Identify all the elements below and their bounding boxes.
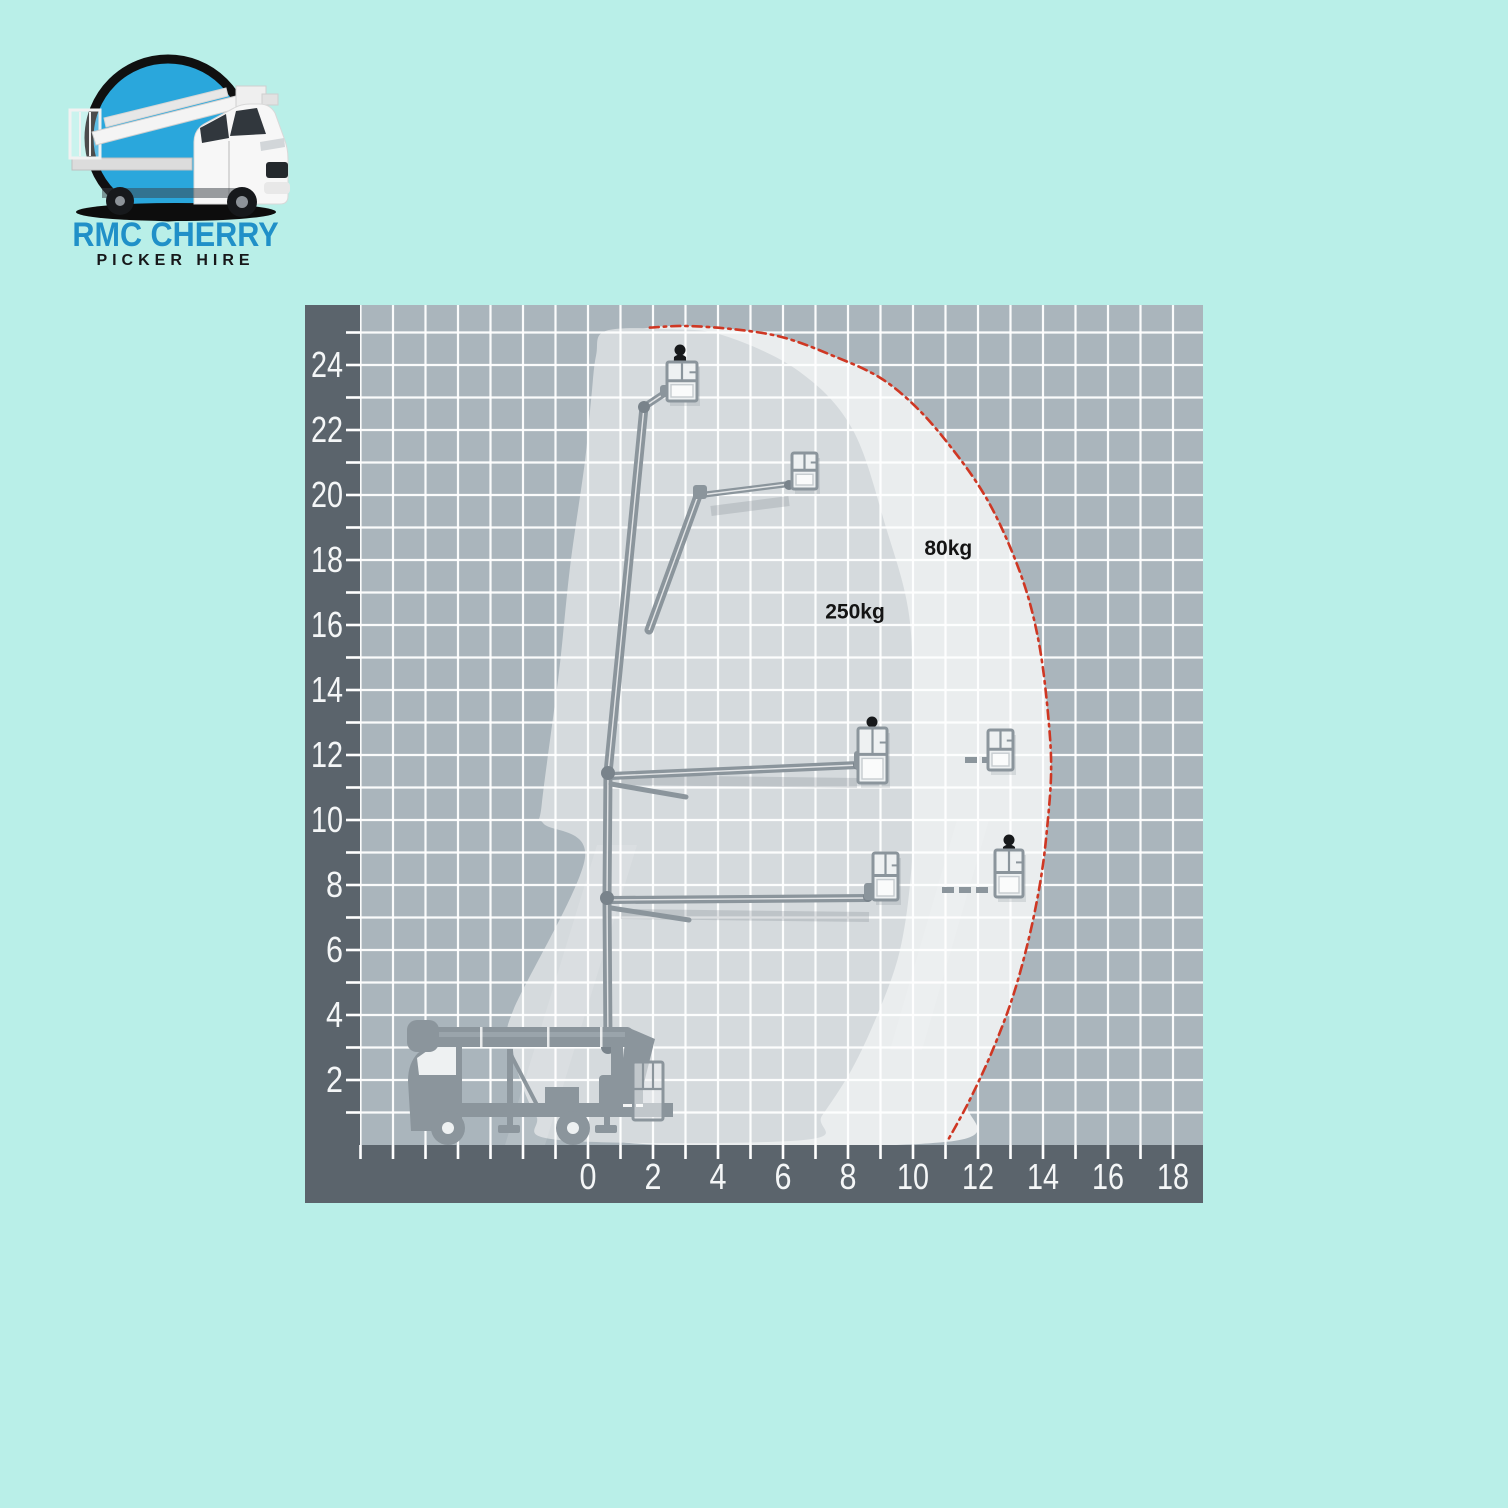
y-axis-label: 6 bbox=[326, 929, 343, 970]
x-axis-label: 0 bbox=[580, 1156, 597, 1197]
x-axis-label: 14 bbox=[1027, 1156, 1059, 1197]
x-axis-label: 8 bbox=[840, 1156, 857, 1197]
y-axis-label: 10 bbox=[311, 799, 343, 840]
y-axis-label: 22 bbox=[311, 409, 343, 450]
weight-label-80kg: 80kg bbox=[924, 537, 972, 560]
logo-subtitle: PICKER HIRE bbox=[58, 252, 293, 270]
x-axis-label: 18 bbox=[1157, 1156, 1189, 1197]
y-axis-label: 20 bbox=[311, 474, 343, 515]
y-axis-label: 18 bbox=[311, 539, 343, 580]
reach-diagram-svg: 02468101214161824681012141618202224 80kg… bbox=[305, 305, 1203, 1203]
x-axis-band bbox=[305, 1145, 1203, 1203]
x-axis-label: 10 bbox=[897, 1156, 929, 1197]
y-axis-label: 12 bbox=[311, 734, 343, 775]
x-axis-label: 2 bbox=[645, 1156, 662, 1197]
y-axis-label: 8 bbox=[326, 864, 343, 905]
logo-title: RMC CHERRY bbox=[70, 216, 282, 255]
y-axis-label: 16 bbox=[311, 604, 343, 645]
y-axis-label: 24 bbox=[311, 344, 343, 385]
x-axis-label: 6 bbox=[775, 1156, 792, 1197]
x-axis-label: 12 bbox=[962, 1156, 994, 1197]
reach-diagram: 02468101214161824681012141618202224 80kg… bbox=[305, 305, 1203, 1203]
x-axis-label: 16 bbox=[1092, 1156, 1124, 1197]
page-background: RMC CHERRY PICKER HIRE 02468101214161824… bbox=[0, 0, 1508, 1508]
x-axis-label: 4 bbox=[710, 1156, 727, 1197]
y-axis-label: 4 bbox=[326, 994, 343, 1035]
y-axis-label: 2 bbox=[326, 1059, 343, 1100]
y-axis-label: 14 bbox=[311, 669, 343, 710]
weight-label-250kg: 250kg bbox=[825, 601, 885, 624]
